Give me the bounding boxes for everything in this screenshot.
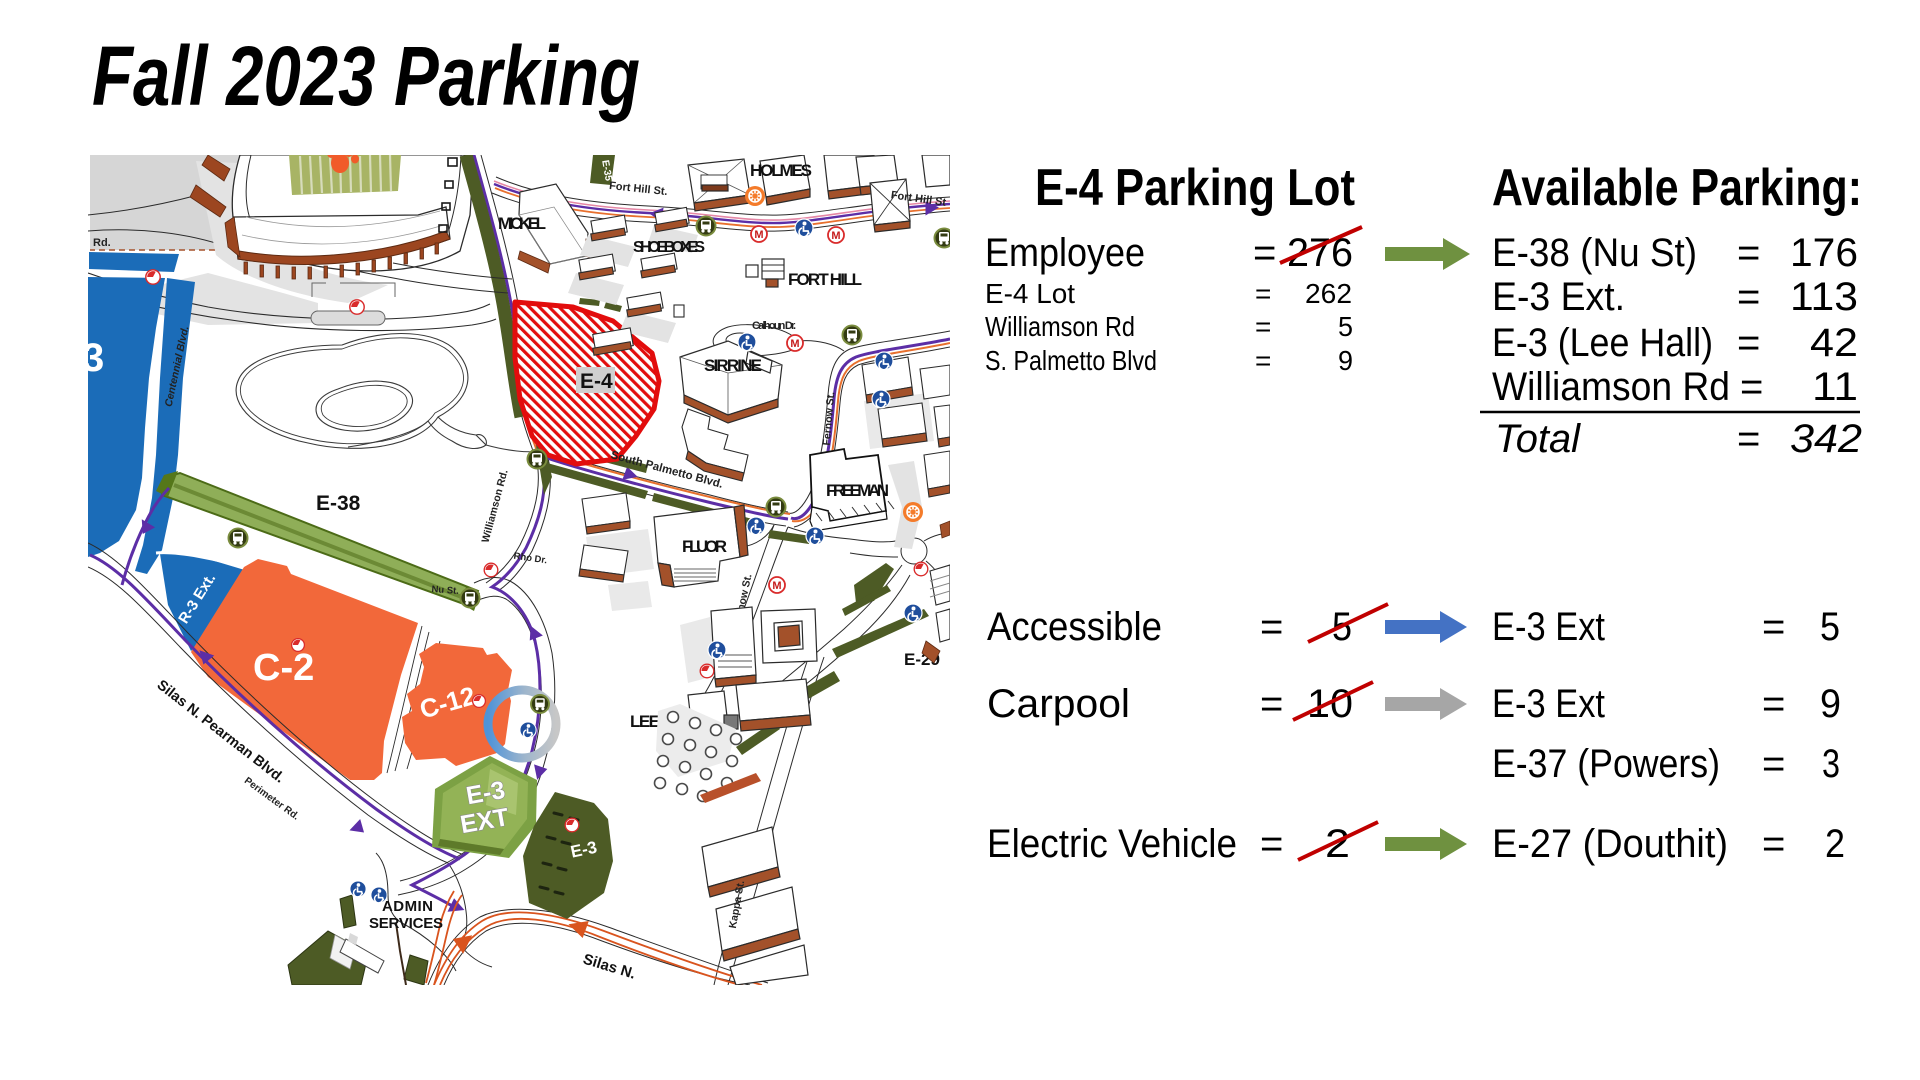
svg-text:=: = <box>1762 682 1785 726</box>
svg-text:=: = <box>1737 231 1760 275</box>
svg-text:=: = <box>1253 231 1276 275</box>
svg-text:Nu St.: Nu St. <box>431 584 459 597</box>
svg-text:E-3 Ext: E-3 Ext <box>1492 682 1605 726</box>
svg-text:E-4 Lot: E-4 Lot <box>985 278 1075 309</box>
svg-text:Electric Vehicle: Electric Vehicle <box>987 822 1237 866</box>
svg-text:FLUOR: FLUOR <box>682 537 727 556</box>
svg-text:MICKEL: MICKEL <box>498 214 546 233</box>
svg-text:2: 2 <box>1825 822 1845 866</box>
svg-text:E-3 Ext.: E-3 Ext. <box>1492 275 1625 319</box>
svg-text:E-38: E-38 <box>316 492 361 515</box>
svg-text:5: 5 <box>1820 605 1840 649</box>
svg-text:SERVICES: SERVICES <box>369 915 443 932</box>
svg-text:=: = <box>1737 321 1760 365</box>
svg-text:Employee: Employee <box>985 231 1145 275</box>
svg-text:FREEMAN: FREEMAN <box>826 481 889 500</box>
svg-text:=: = <box>1762 742 1785 786</box>
svg-text:=: = <box>1762 822 1785 866</box>
svg-text:9: 9 <box>1820 682 1841 726</box>
svg-text:Rd.: Rd. <box>93 237 111 249</box>
svg-text:=: = <box>1255 278 1271 309</box>
svg-text:5: 5 <box>1338 311 1353 342</box>
svg-text:=: = <box>1255 311 1271 342</box>
svg-text:E-4 Parking Lot: E-4 Parking Lot <box>1035 159 1355 217</box>
svg-text:HOLMES: HOLMES <box>750 161 812 180</box>
svg-text:E-37 (Powers): E-37 (Powers) <box>1492 742 1720 786</box>
svg-text:Carpool: Carpool <box>987 682 1130 726</box>
svg-text:FORT HILL: FORT HILL <box>788 270 862 289</box>
svg-text:E-38 (Nu St): E-38 (Nu St) <box>1492 231 1697 275</box>
svg-text:=: = <box>1260 822 1283 866</box>
svg-text:=: = <box>1737 417 1760 461</box>
svg-text:Available Parking:: Available Parking: <box>1492 159 1862 217</box>
svg-text:E-27 (Douthit): E-27 (Douthit) <box>1492 822 1728 866</box>
svg-text:262: 262 <box>1305 278 1352 309</box>
svg-text:3: 3 <box>1822 742 1840 786</box>
svg-text:SHOEBOXES: SHOEBOXES <box>633 239 705 256</box>
svg-text:113: 113 <box>1790 275 1858 319</box>
svg-text:176: 176 <box>1790 231 1858 275</box>
svg-text:9: 9 <box>1338 345 1353 376</box>
svg-text:Fall 2023 Parking: Fall 2023 Parking <box>92 29 640 123</box>
svg-text:=: = <box>1255 345 1271 376</box>
svg-text:Calhoun Dr.: Calhoun Dr. <box>752 320 796 332</box>
svg-text:11: 11 <box>1812 365 1858 409</box>
svg-text:=: = <box>1737 275 1760 319</box>
svg-text:42: 42 <box>1810 321 1858 365</box>
svg-text:Williamson Rd: Williamson Rd <box>1492 365 1730 409</box>
svg-text:=: = <box>1762 605 1785 649</box>
svg-text:Accessible: Accessible <box>987 605 1162 649</box>
svg-text:ADMIN: ADMIN <box>382 898 433 915</box>
svg-text:C-2: C-2 <box>253 647 314 689</box>
svg-text:E-3 (Lee Hall): E-3 (Lee Hall) <box>1492 321 1713 365</box>
svg-text:LEE: LEE <box>630 712 660 731</box>
svg-text:=: = <box>1260 682 1283 726</box>
svg-text:=: = <box>1740 365 1763 409</box>
svg-text:Williamson Rd: Williamson Rd <box>985 311 1135 342</box>
svg-text:276: 276 <box>1287 231 1353 275</box>
svg-text:S. Palmetto Blvd: S. Palmetto Blvd <box>985 345 1157 376</box>
svg-text:SIRRINE: SIRRINE <box>704 356 762 375</box>
svg-text:Total: Total <box>1495 417 1581 461</box>
svg-text:342: 342 <box>1790 417 1862 461</box>
svg-text:=: = <box>1260 605 1283 649</box>
svg-text:E-4: E-4 <box>580 370 613 393</box>
svg-text:E-3 Ext: E-3 Ext <box>1492 605 1605 649</box>
